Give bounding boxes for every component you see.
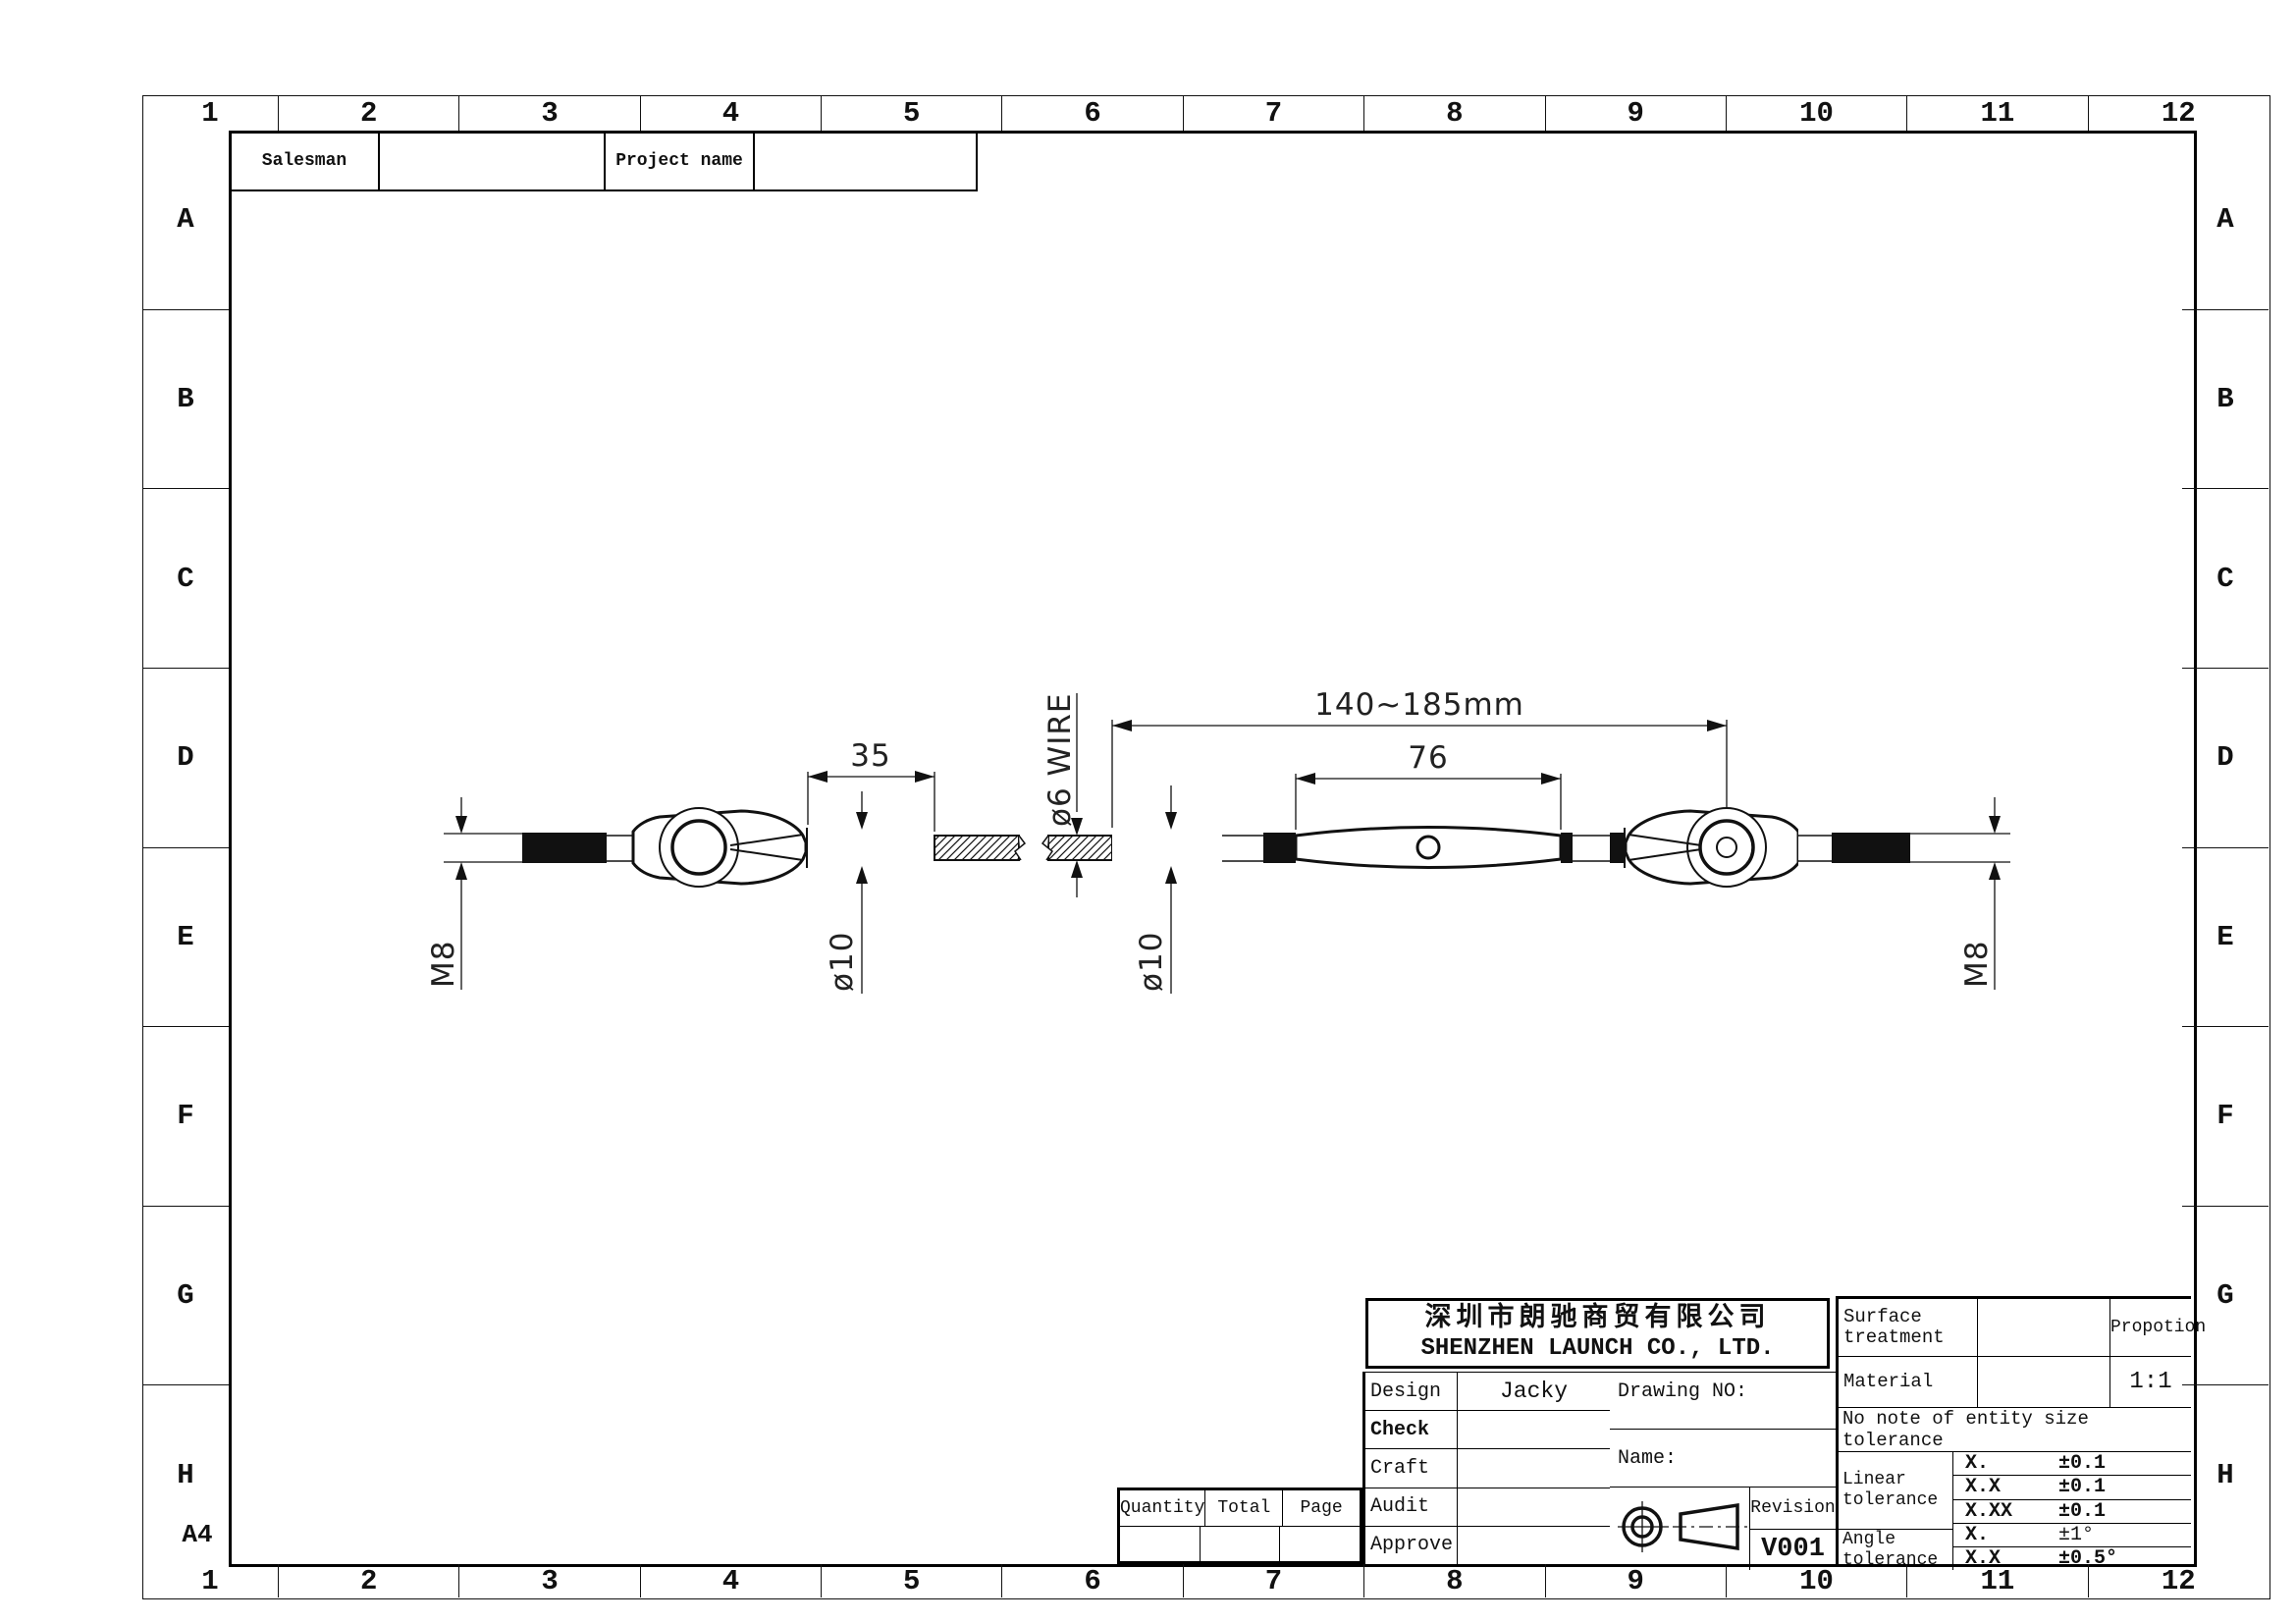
dim-label-m8-right: M8 xyxy=(1959,941,1995,988)
dim-m8-left: M8 xyxy=(426,797,524,990)
dim-label-dia10-right: ø10 xyxy=(1134,932,1169,992)
dim-label-overall: 140~185mm xyxy=(1314,687,1524,723)
turnbuckle-right-thread-b xyxy=(1610,833,1626,863)
turnbuckle-barrel xyxy=(1296,828,1561,868)
left-swage-cylinder xyxy=(810,830,934,866)
drawing-sheet: 123456789101112 123456789101112 ABCDEFGH… xyxy=(0,0,2296,1623)
dim-label-35: 35 xyxy=(850,738,890,774)
left-fork-body xyxy=(633,808,807,887)
left-fork-terminal: M8 xyxy=(426,738,1025,994)
dim-dia10-right: ø10 xyxy=(1134,785,1177,994)
right-stud-thread xyxy=(1832,833,1910,863)
turnbuckle-left-nut xyxy=(1222,822,1263,875)
turnbuckle-right-nut xyxy=(1573,822,1610,875)
right-jam-nut xyxy=(1798,822,1832,875)
dim-35: 35 xyxy=(808,738,934,832)
dim-label-dia10-left: ø10 xyxy=(825,932,860,992)
right-fork-body xyxy=(1625,808,1798,887)
dim-m8-right: M8 xyxy=(1910,797,2010,990)
right-swage-cylinder xyxy=(1112,830,1222,866)
left-wire-rope xyxy=(934,836,1025,860)
dim-label-m8-left: M8 xyxy=(426,941,461,988)
dim-label-dia6-wire: ø6 WIRE xyxy=(1042,693,1078,827)
left-jam-nut xyxy=(607,822,633,875)
turnbuckle-left-thread xyxy=(1263,833,1296,863)
turnbuckle-right-thread-a xyxy=(1561,833,1573,863)
dim-dia10-left: ø10 xyxy=(825,791,868,994)
left-stud-thread xyxy=(522,833,607,863)
dim-label-76: 76 xyxy=(1408,740,1448,776)
turnbuckle-assembly: ø6 WIRE ø10 xyxy=(1042,687,2010,994)
dim-76: 76 xyxy=(1296,740,1561,830)
turnbuckle-drawing: M8 xyxy=(0,0,2296,1623)
right-wire-rope xyxy=(1042,836,1112,860)
dim-dia6-wire: ø6 WIRE xyxy=(1042,693,1083,897)
